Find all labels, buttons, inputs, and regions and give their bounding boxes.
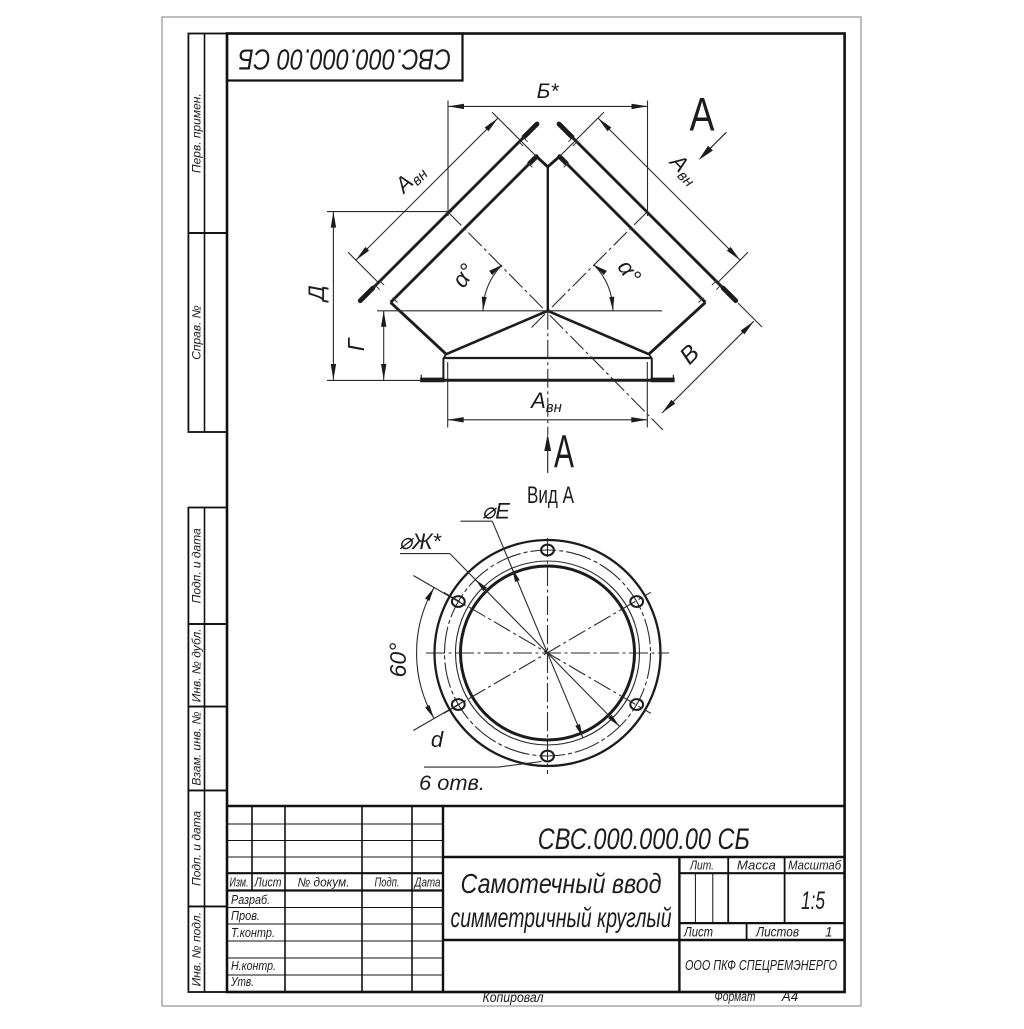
svg-text:СВС.000.000.00 СБ: СВС.000.000.00 СБ <box>238 43 451 75</box>
svg-text:Г: Г <box>343 337 369 351</box>
svg-text:60°: 60° <box>385 643 411 678</box>
svg-text:1: 1 <box>825 925 833 940</box>
svg-text:Разраб.: Разраб. <box>231 893 270 907</box>
svg-text:Вид А: Вид А <box>527 482 574 509</box>
svg-text:Самотечный ввод: Самотечный ввод <box>461 868 662 899</box>
svg-text:Утв.: Утв. <box>230 975 254 989</box>
svg-text:А: А <box>554 426 574 478</box>
svg-text:ООО ПКФ СПЕЦРЕМЭНЕРГО: ООО ПКФ СПЕЦРЕМЭНЕРГО <box>685 957 837 974</box>
svg-text:Взам. инв. №: Взам. инв. № <box>189 711 203 785</box>
svg-text:d: d <box>431 727 444 752</box>
svg-text:Подп. и дата: Подп. и дата <box>189 811 203 886</box>
svg-text:⌀Ж*: ⌀Ж* <box>399 529 442 554</box>
svg-text:Лист: Лист <box>683 925 713 940</box>
svg-text:Подп. и дата: Подп. и дата <box>189 528 203 603</box>
svg-text:Пров.: Пров. <box>231 909 260 923</box>
svg-text:Справ. №: Справ. № <box>189 305 203 360</box>
svg-text:Копировал: Копировал <box>483 990 544 1005</box>
svg-text:Б*: Б* <box>537 80 560 103</box>
svg-text:СВС.000.000.00 СБ: СВС.000.000.00 СБ <box>538 823 750 856</box>
svg-text:А: А <box>690 88 716 141</box>
svg-text:Инв. № подл.: Инв. № подл. <box>189 912 203 986</box>
svg-text:А4: А4 <box>781 989 799 1004</box>
svg-text:Дата: Дата <box>413 876 441 890</box>
svg-text:Лист: Лист <box>254 876 282 890</box>
svg-text:Н.контр.: Н.контр. <box>231 959 276 973</box>
svg-text:Листов: Листов <box>755 925 799 940</box>
svg-text:симметричный круглый: симметричный круглый <box>451 902 672 933</box>
svg-text:6 отв.: 6 отв. <box>419 772 485 795</box>
svg-text:1:5: 1:5 <box>801 887 825 915</box>
svg-text:Изм.: Изм. <box>230 876 249 890</box>
svg-text:Д: Д <box>304 285 329 304</box>
svg-text:Т.контр.: Т.контр. <box>231 926 275 940</box>
svg-text:Инв. № дубл.: Инв. № дубл. <box>189 628 203 702</box>
svg-text:Масса: Масса <box>737 858 776 873</box>
svg-text:Масштаб: Масштаб <box>788 858 842 873</box>
svg-text:Подп.: Подп. <box>375 876 400 890</box>
svg-text:Формат: Формат <box>715 989 756 1004</box>
svg-text:№ докум.: № докум. <box>298 876 350 890</box>
svg-text:Лит.: Лит. <box>689 858 714 873</box>
svg-text:⌀Е: ⌀Е <box>482 499 510 524</box>
svg-text:Перв. примен.: Перв. примен. <box>189 93 203 173</box>
